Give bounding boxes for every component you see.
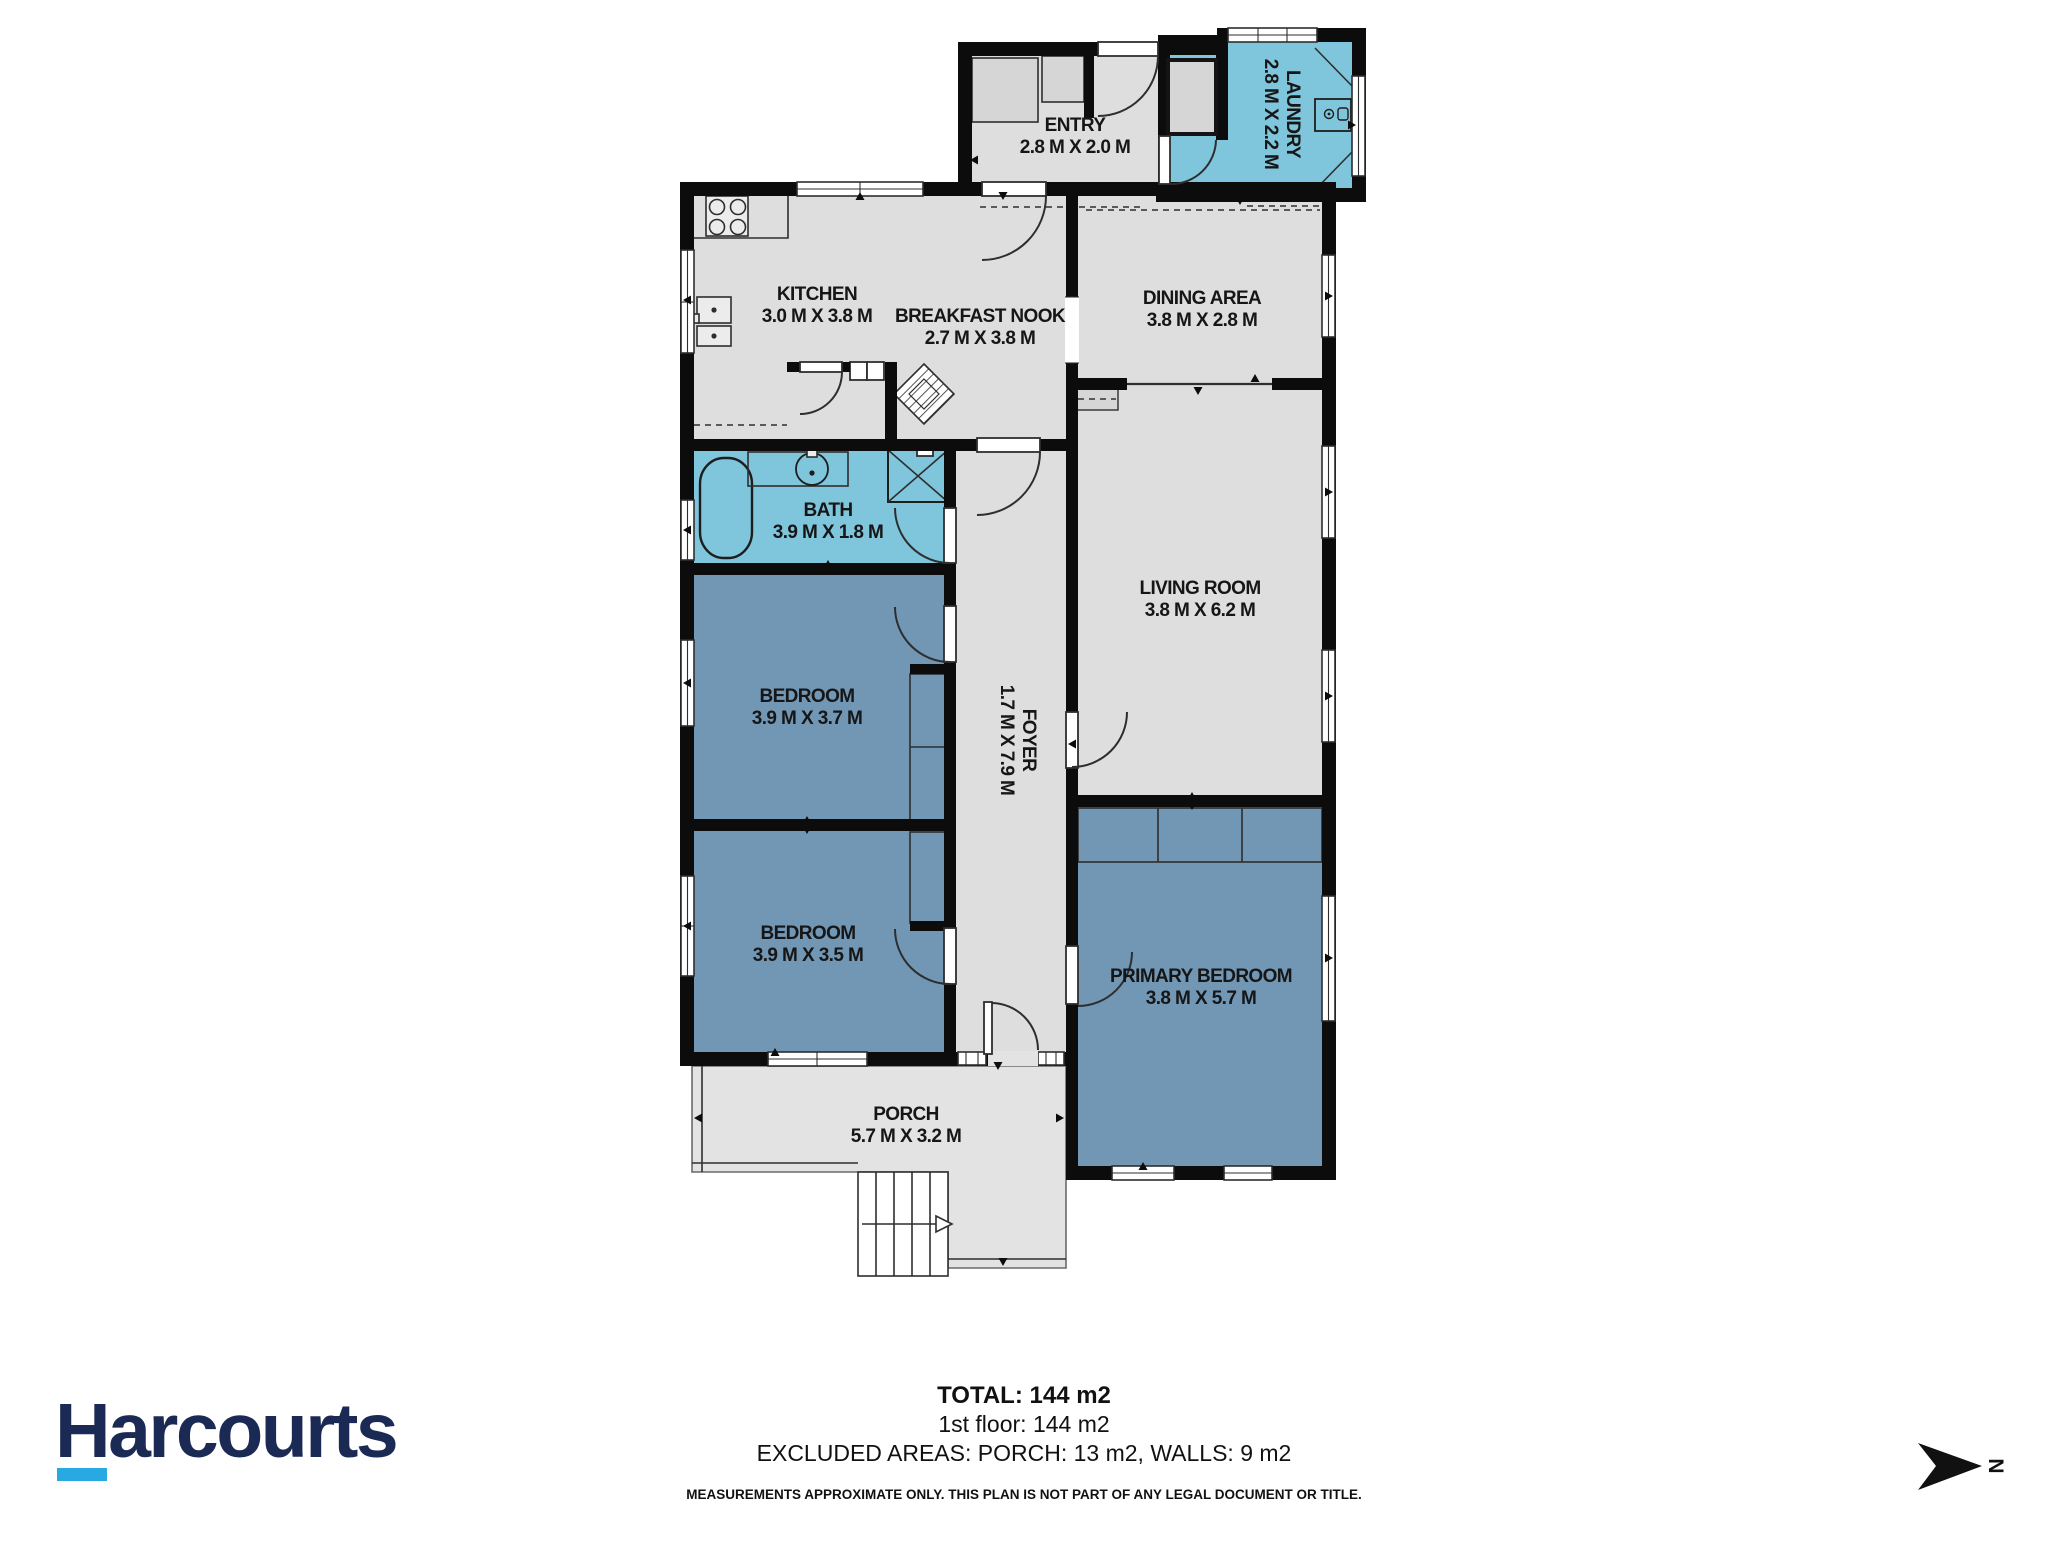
- pantry-shelf: [850, 362, 867, 380]
- kitchen-sink-icon: [691, 297, 731, 346]
- breakfast-nook-label: BREAKFAST NOOK: [895, 306, 1066, 327]
- window: [1228, 28, 1317, 42]
- sidelite-window: [958, 1052, 986, 1065]
- primary-bedroom-label: PRIMARY BEDROOM: [1110, 966, 1292, 987]
- bedroom1-label: BEDROOM: [759, 686, 854, 707]
- living-dims: 3.8 M X 6.2 M: [1145, 600, 1255, 621]
- laundry-label: LAUNDRY: [1282, 70, 1303, 159]
- bath-label: BATH: [804, 500, 853, 521]
- living-label: LIVING ROOM: [1139, 578, 1260, 599]
- primary-bedroom-floor: [1072, 801, 1329, 1173]
- pass-through: [1065, 297, 1079, 363]
- bedroom2-dims: 3.9 M X 3.5 M: [753, 945, 863, 966]
- bedroom2-label: BEDROOM: [760, 923, 855, 944]
- floorplan-page: ENTRY 2.8 M X 2.0 M LAUNDRY 2.8 M X 2.2 …: [0, 0, 2048, 1536]
- kitchen-dims: 3.0 M X 3.8 M: [762, 306, 872, 327]
- disclaimer-text: MEASUREMENTS APPROXIMATE ONLY. THIS PLAN…: [686, 1487, 1362, 1502]
- entry-dims: 2.8 M X 2.0 M: [1020, 137, 1130, 158]
- entry-closet: [1042, 56, 1084, 102]
- excluded-areas-text: EXCLUDED AREAS: PORCH: 13 m2, WALLS: 9 m…: [757, 1440, 1292, 1466]
- dining-dims: 3.8 M X 2.8 M: [1147, 310, 1257, 331]
- laundry-label-group: LAUNDRY 2.8 M X 2.2 M: [1260, 59, 1303, 169]
- harcourts-logo-text: Harcourts: [55, 1388, 396, 1474]
- north-label: N: [1984, 1458, 2007, 1473]
- dining-floor: [1072, 189, 1329, 384]
- porch-label: PORCH: [873, 1104, 939, 1125]
- sidelite-window: [1038, 1052, 1064, 1065]
- porch-dims: 5.7 M X 3.2 M: [851, 1126, 961, 1147]
- harcourts-logo: Harcourts: [55, 1388, 396, 1481]
- kitchen-label: KITCHEN: [777, 284, 857, 305]
- wall-entry-stub: [1084, 42, 1094, 118]
- stairs-icon: [858, 1172, 952, 1276]
- total-area-text: TOTAL: 144 m2: [937, 1382, 1111, 1409]
- dining-label: DINING AREA: [1143, 288, 1262, 309]
- primary-bedroom-dims: 3.8 M X 5.7 M: [1146, 988, 1256, 1009]
- logo-underline: [57, 1468, 107, 1481]
- pantry-shelf: [867, 362, 884, 380]
- window: [1224, 1166, 1272, 1180]
- foyer-label: FOYER: [1018, 709, 1039, 772]
- living-cabinet: [1076, 388, 1118, 410]
- entry-label: ENTRY: [1045, 115, 1107, 136]
- window: [768, 1052, 867, 1066]
- entry-closet: [972, 58, 1038, 122]
- foyer-dims: 1.7 M X 7.9 M: [996, 685, 1017, 795]
- bedroom1-dims: 3.9 M X 3.7 M: [752, 708, 862, 729]
- laundry-dims: 2.8 M X 2.2 M: [1260, 59, 1281, 169]
- breakfast-nook-dims: 2.7 M X 3.8 M: [925, 328, 1035, 349]
- bath-dims: 3.9 M X 1.8 M: [773, 522, 883, 543]
- summary-block: TOTAL: 144 m2 1st floor: 144 m2 EXCLUDED…: [686, 1382, 1362, 1502]
- stove-icon: [706, 196, 748, 236]
- floorplan-drawing: ENTRY 2.8 M X 2.0 M LAUNDRY 2.8 M X 2.2 …: [0, 0, 2048, 1536]
- laundry-closet: [1168, 60, 1216, 134]
- floor-area-text: 1st floor: 144 m2: [938, 1411, 1109, 1437]
- north-arrow-icon: N: [1918, 1443, 2007, 1490]
